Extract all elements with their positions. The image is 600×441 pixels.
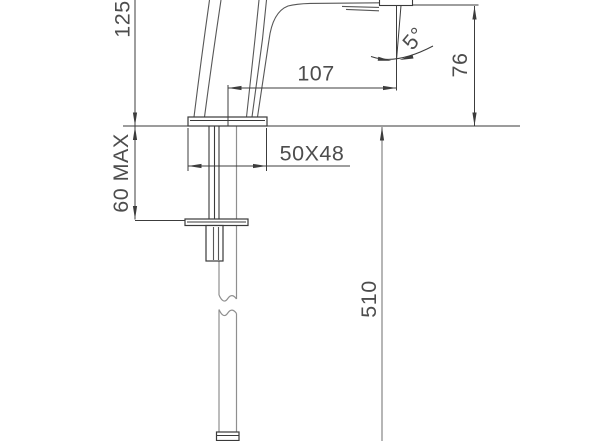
dim-label-50x48: 50X48: [280, 142, 345, 166]
body-front-edge-1: [247, 0, 260, 117]
dim-label-125: 125: [111, 0, 135, 37]
dim-50x48-arrow-left: [188, 164, 202, 168]
spout-underside-1: [342, 6, 379, 7]
dimension-107: 107: [228, 62, 397, 127]
dim-76-arrow-up: [472, 6, 476, 20]
spout-top-line: [258, 3, 381, 117]
break-squiggle-top: [219, 295, 237, 301]
dim-125-arrow-down: [133, 113, 137, 127]
dim-510-arrow-up: [380, 127, 384, 141]
dim-60max-arrow-down: [133, 206, 137, 220]
dimension-125: 125: [111, 0, 138, 126]
dim-5deg-arrow-right: [400, 55, 414, 61]
dimension-60-max: 60 MAX: [109, 126, 185, 221]
dim-label-60-max: 60 MAX: [109, 133, 133, 212]
body-front-edge-2: [252, 0, 267, 117]
dimension-5-deg: 5°: [371, 6, 433, 91]
dim-5deg-arrow-left: [378, 57, 392, 61]
dimension-76: 76: [413, 5, 479, 126]
dim-76-arrow-down: [472, 113, 476, 127]
dim-107-arrow-left: [228, 86, 242, 90]
dim-5deg-tilted-line: [397, 6, 402, 61]
spout-underside-2: [346, 9, 379, 10]
break-squiggle-bottom: [219, 310, 237, 316]
faucet-dimension-drawing: 125 60 MAX 107 5°: [0, 0, 600, 441]
dim-50x48-arrow-right: [253, 164, 267, 168]
shank-end-nut: [206, 226, 223, 262]
dimension-50x48: 50X48: [188, 128, 350, 171]
dim-label-107: 107: [297, 62, 334, 86]
dim-5deg-arc: [371, 46, 433, 59]
dimension-510: 510: [357, 127, 384, 441]
technical-drawing-canvas: 125 60 MAX 107 5°: [0, 0, 600, 441]
aerator-outlet: [380, 0, 413, 6]
dim-label-76: 76: [448, 53, 472, 78]
dim-60max-arrow-up: [133, 127, 137, 141]
dim-107-arrow-right: [383, 86, 397, 90]
hose-end-fitting: [217, 432, 240, 441]
under-deck-assembly: [185, 126, 248, 441]
dim-label-510: 510: [357, 280, 381, 317]
